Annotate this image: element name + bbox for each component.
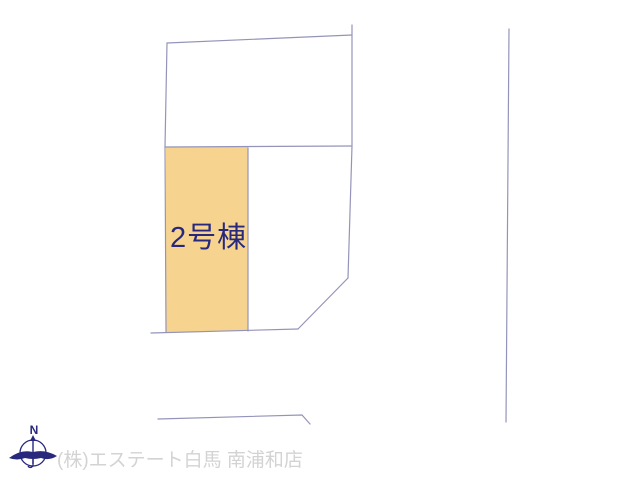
boundary-road-line: [158, 415, 310, 424]
site-plan-svg: 2号棟 N (株)エステート白馬 南浦和店: [0, 0, 640, 480]
boundary-divider-horizontal: [165, 146, 352, 147]
compass-icon: N: [9, 423, 57, 468]
boundary-right-road: [506, 29, 509, 422]
footer-company-text: (株)エステート白馬 南浦和店: [57, 449, 303, 471]
site-plan-image: 2号棟 N (株)エステート白馬 南浦和店: [0, 0, 640, 480]
boundary-right-edge: [348, 25, 352, 278]
compass-north-label: N: [30, 423, 39, 437]
lot-2-label: 2号棟: [170, 221, 247, 254]
boundary-chamfer: [298, 278, 348, 329]
boundary-upper-top: [167, 35, 352, 43]
compass-wing: [9, 451, 57, 459]
